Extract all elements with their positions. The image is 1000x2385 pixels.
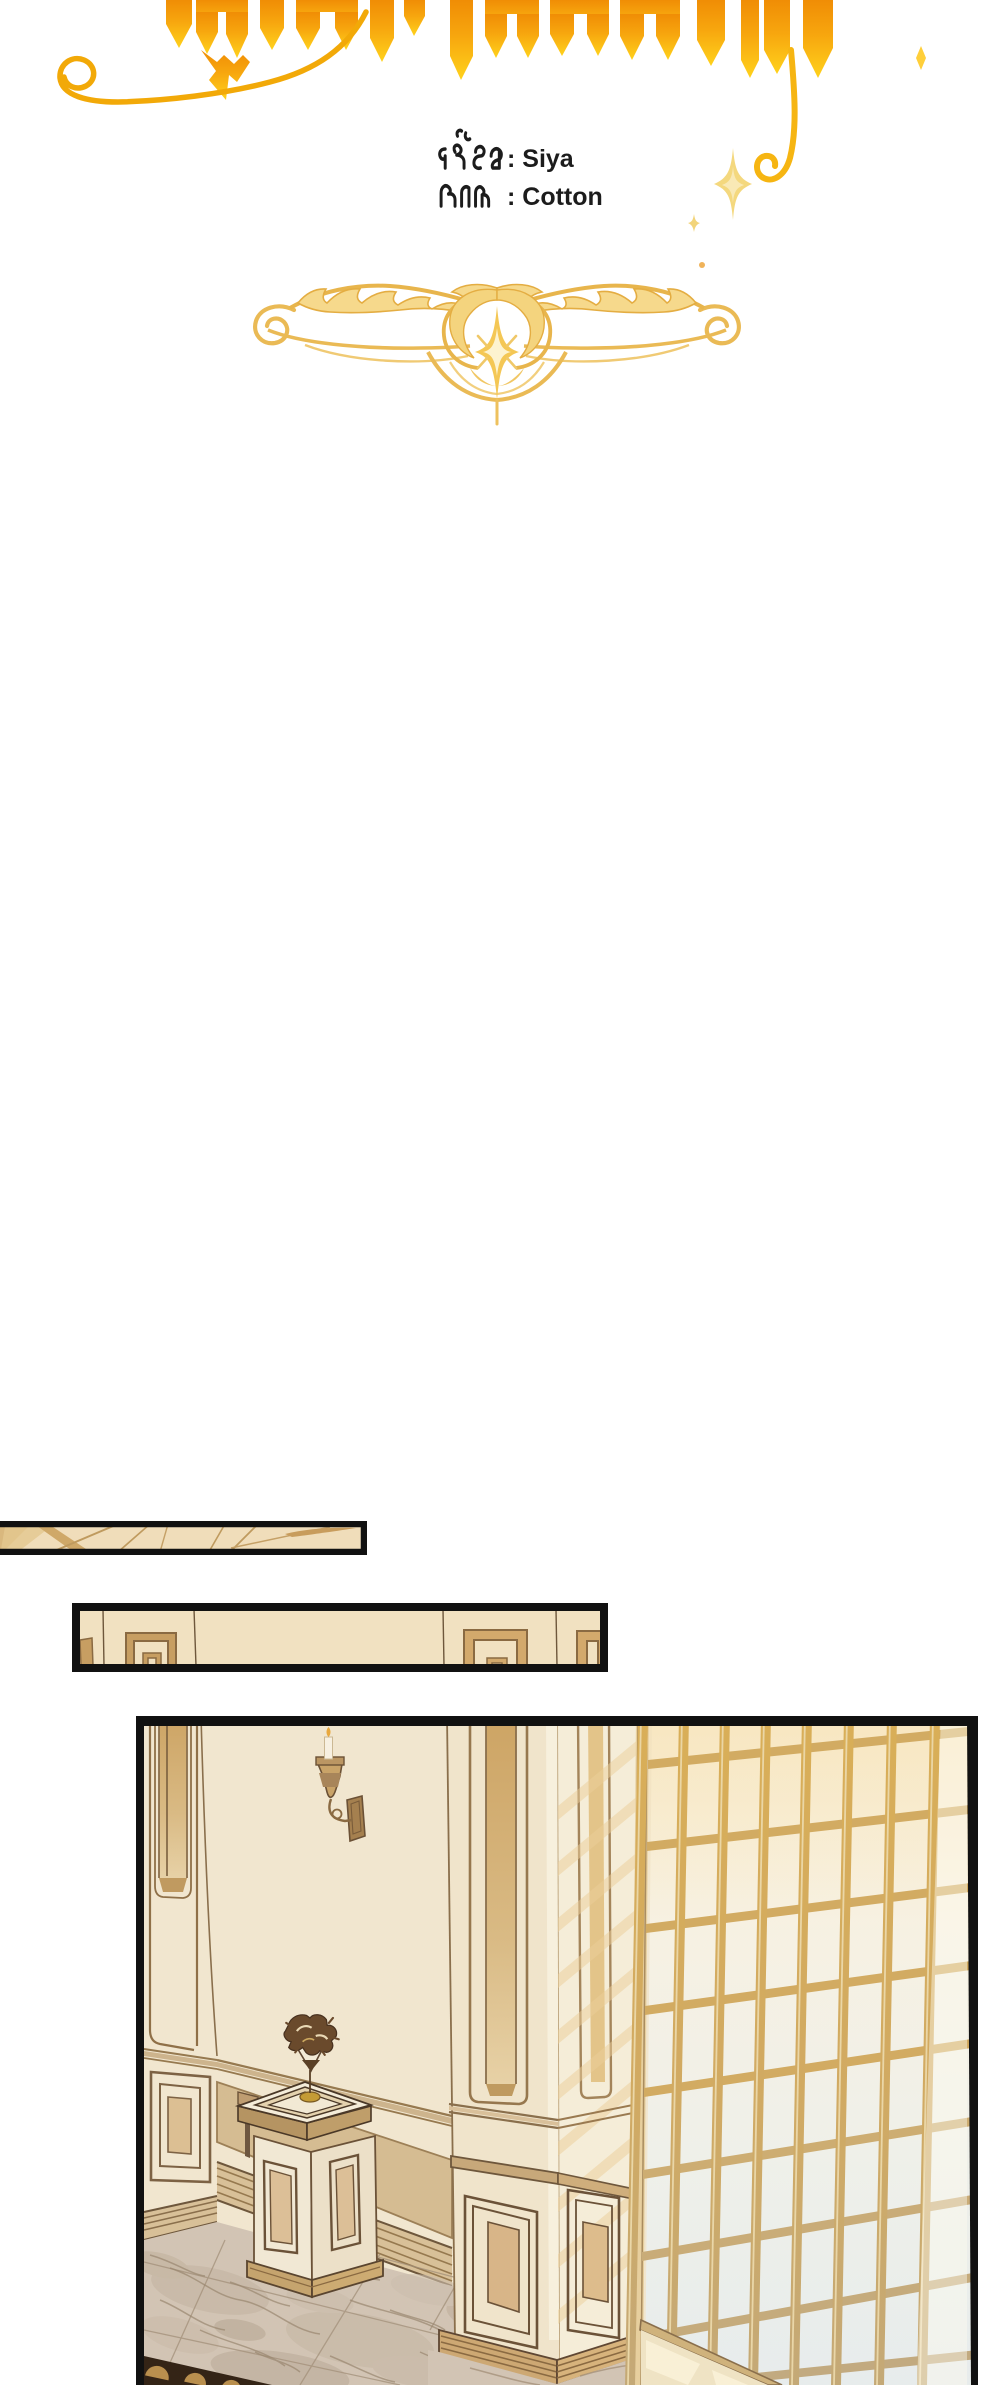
svg-text:: Cotton: : Cotton: [507, 183, 603, 211]
svg-text:: Siya: : Siya: [507, 145, 575, 173]
